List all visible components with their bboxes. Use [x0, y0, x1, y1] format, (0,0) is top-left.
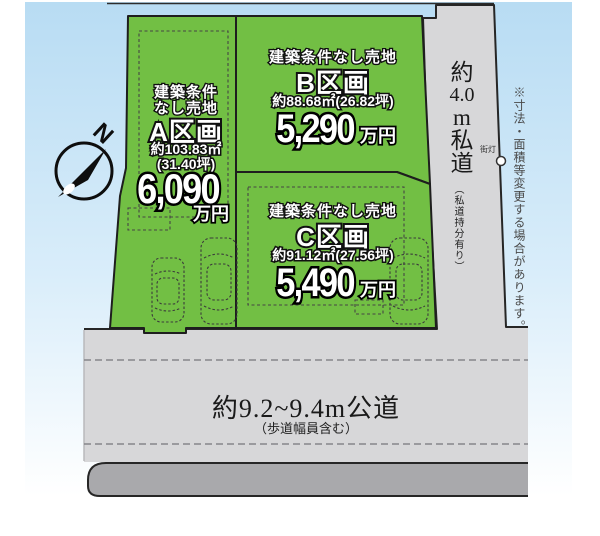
parcel-a-price-unit: 万円 — [193, 200, 229, 226]
parcel-c-price: 5,490万円 — [270, 261, 396, 306]
disclaimer-note: ※寸法・面積等変更する場合があります。 — [511, 86, 528, 333]
private-road-label: 約 4.0 m 私 道 — [441, 61, 483, 175]
sidewalk-strip — [88, 463, 528, 496]
private-road-note: （私道持分有り） — [450, 184, 465, 272]
lot-site-plan: N 建築条件 なし売地 A区画 約103.83㎡ (31.40坪) 6,090 … — [0, 0, 600, 536]
parcel-b-price: 5,290万円 — [270, 107, 396, 152]
streetlight-icon — [497, 157, 506, 166]
streetlight-label: 街灯 — [480, 144, 496, 155]
public-road-note: （歩道幅員含む） — [254, 418, 358, 437]
